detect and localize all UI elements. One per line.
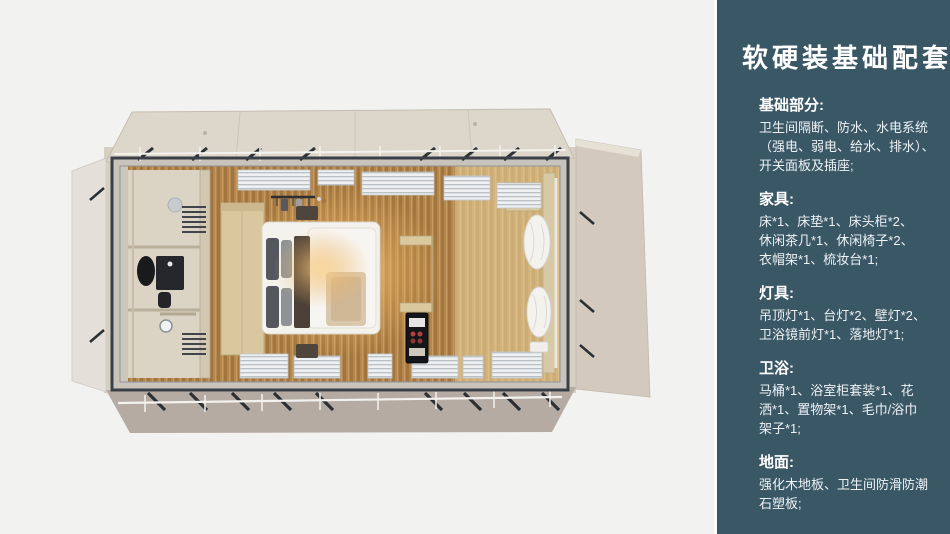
spec-line: 衣帽架*1、梳妆台*1; <box>759 250 940 269</box>
spec-line: 强化木地板、卫生间防滑防潮 <box>759 475 940 494</box>
spec-heading: 基础部分: <box>759 96 940 116</box>
towel-roll <box>168 198 182 212</box>
window-blinds-bottom <box>240 352 542 378</box>
bathroom <box>120 166 210 382</box>
spec-line: 卫浴镜前灯*1、落地灯*1; <box>759 325 940 344</box>
info-panel: 软硬装基础配套 基础部分: 卫生间隔断、防水、水电系统 （强电、弱电、给水、排水… <box>714 0 950 534</box>
shower-head <box>160 320 172 332</box>
spec-section-lighting: 灯具: 吊顶灯*1、台灯*2、壁灯*2、 卫浴镜前灯*1、落地灯*1; <box>759 284 940 344</box>
spec-line: 架子*1; <box>759 419 940 438</box>
spec-line: （强电、弱电、给水、排水）、 <box>759 137 940 156</box>
slide: 软硬装基础配套 基础部分: 卫生间隔断、防水、水电系统 （强电、弱电、给水、排水… <box>0 0 950 534</box>
panel-title: 软硬装基础配套 <box>742 42 940 74</box>
toilet <box>158 292 171 308</box>
spec-section-bathroom: 卫浴: 马桶*1、浴室柜套装*1、花 洒*1、置物架*1、毛巾/浴巾 架子*1; <box>759 359 940 438</box>
spec-section-basics: 基础部分: 卫生间隔断、防水、水电系统 （强电、弱电、给水、排水）、 开关面板及… <box>759 96 940 175</box>
spec-heading: 地面: <box>759 453 940 473</box>
nightstand-bottom <box>296 344 318 358</box>
cabin-left-flap <box>72 158 106 392</box>
spec-line: 床*1、床垫*1、床头柜*2、 <box>759 212 940 231</box>
towels <box>530 342 548 352</box>
spec-line: 开关面板及插座; <box>759 156 940 175</box>
spec-line: 卫生间隔断、防水、水电系统 <box>759 118 940 137</box>
spec-heading: 灯具: <box>759 284 940 304</box>
cabin-right-flap <box>576 139 650 397</box>
spec-section-furniture: 家具: 床*1、床垫*1、床头柜*2、 休闲茶几*1、休闲椅子*2、 衣帽架*1… <box>759 190 940 269</box>
nightstand-top <box>296 206 318 220</box>
minibar-fridge <box>406 313 428 363</box>
spec-line: 洒*1、置物架*1、毛巾/浴巾 <box>759 400 940 419</box>
floorplan-render <box>0 0 713 534</box>
vanity-mirror <box>137 256 155 286</box>
wardrobe <box>221 203 264 355</box>
bathroom-vanity <box>156 256 184 290</box>
spec-line: 休闲茶几*1、休闲椅子*2、 <box>759 231 940 250</box>
spec-line: 吊顶灯*1、台灯*2、壁灯*2、 <box>759 306 940 325</box>
spec-heading: 家具: <box>759 190 940 210</box>
spec-section-flooring: 地面: 强化木地板、卫生间防滑防潮 石塑板; <box>759 453 940 513</box>
spec-line: 石塑板; <box>759 494 940 513</box>
spec-line: 马桶*1、浴室柜套装*1、花 <box>759 381 940 400</box>
floorplan-canvas <box>0 0 713 534</box>
spec-heading: 卫浴: <box>759 359 940 379</box>
